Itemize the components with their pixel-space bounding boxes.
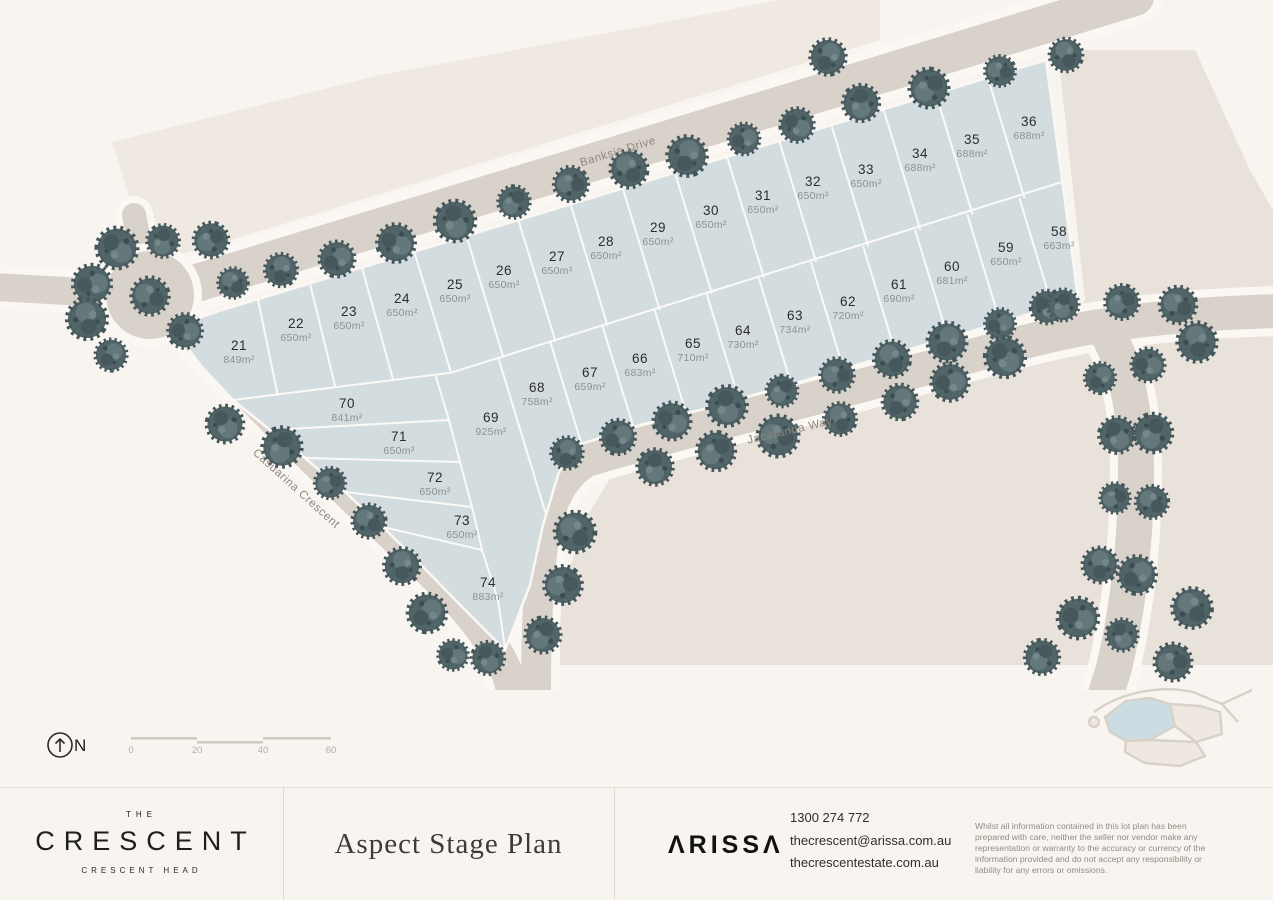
north-label: N xyxy=(74,736,86,756)
brand-location: CRESCENT HEAD xyxy=(0,866,283,875)
agency-logo: ΛRISSΛ xyxy=(668,831,784,860)
plan-title: Aspect Stage Plan xyxy=(283,788,614,900)
footer: THE CRESCENT CRESCENT HEAD Aspect Stage … xyxy=(0,787,1273,900)
inset-stage-highlight xyxy=(1105,698,1175,741)
scale-tick: 0 xyxy=(128,745,133,756)
tree-icon xyxy=(94,338,127,371)
lot-plan-page: 21849m²22650m²23650m²24650m²25650m²26650… xyxy=(0,0,1273,900)
scale-bar: 0 20 40 60 xyxy=(123,732,343,762)
footer-divider xyxy=(614,788,615,900)
scale-tick: 60 xyxy=(326,745,337,756)
tree-icon xyxy=(406,592,448,634)
inset-map xyxy=(1078,676,1258,776)
north-arrow-icon xyxy=(56,739,65,752)
inset-road-tail xyxy=(1222,690,1252,704)
contact-block: 1300 274 772 thecrescent@arissa.com.au t… xyxy=(790,807,951,875)
scale-tick: 40 xyxy=(258,745,269,756)
contact-phone: 1300 274 772 xyxy=(790,807,951,830)
brand-logo: THE CRESCENT CRESCENT HEAD xyxy=(0,788,283,900)
contact-website[interactable]: thecrescentestate.com.au xyxy=(790,852,951,875)
site-plan-map xyxy=(0,0,1273,690)
brand-name: CRESCENT xyxy=(8,826,283,857)
inset-area xyxy=(1170,704,1222,742)
disclaimer-text: Whilst all information contained in this… xyxy=(975,821,1223,876)
brand-pre: THE xyxy=(0,810,283,819)
inset-roundabout xyxy=(1089,717,1099,727)
scale-tick: 20 xyxy=(192,745,203,756)
contact-email[interactable]: thecrescent@arissa.com.au xyxy=(790,830,951,853)
inset-area xyxy=(1125,740,1205,766)
